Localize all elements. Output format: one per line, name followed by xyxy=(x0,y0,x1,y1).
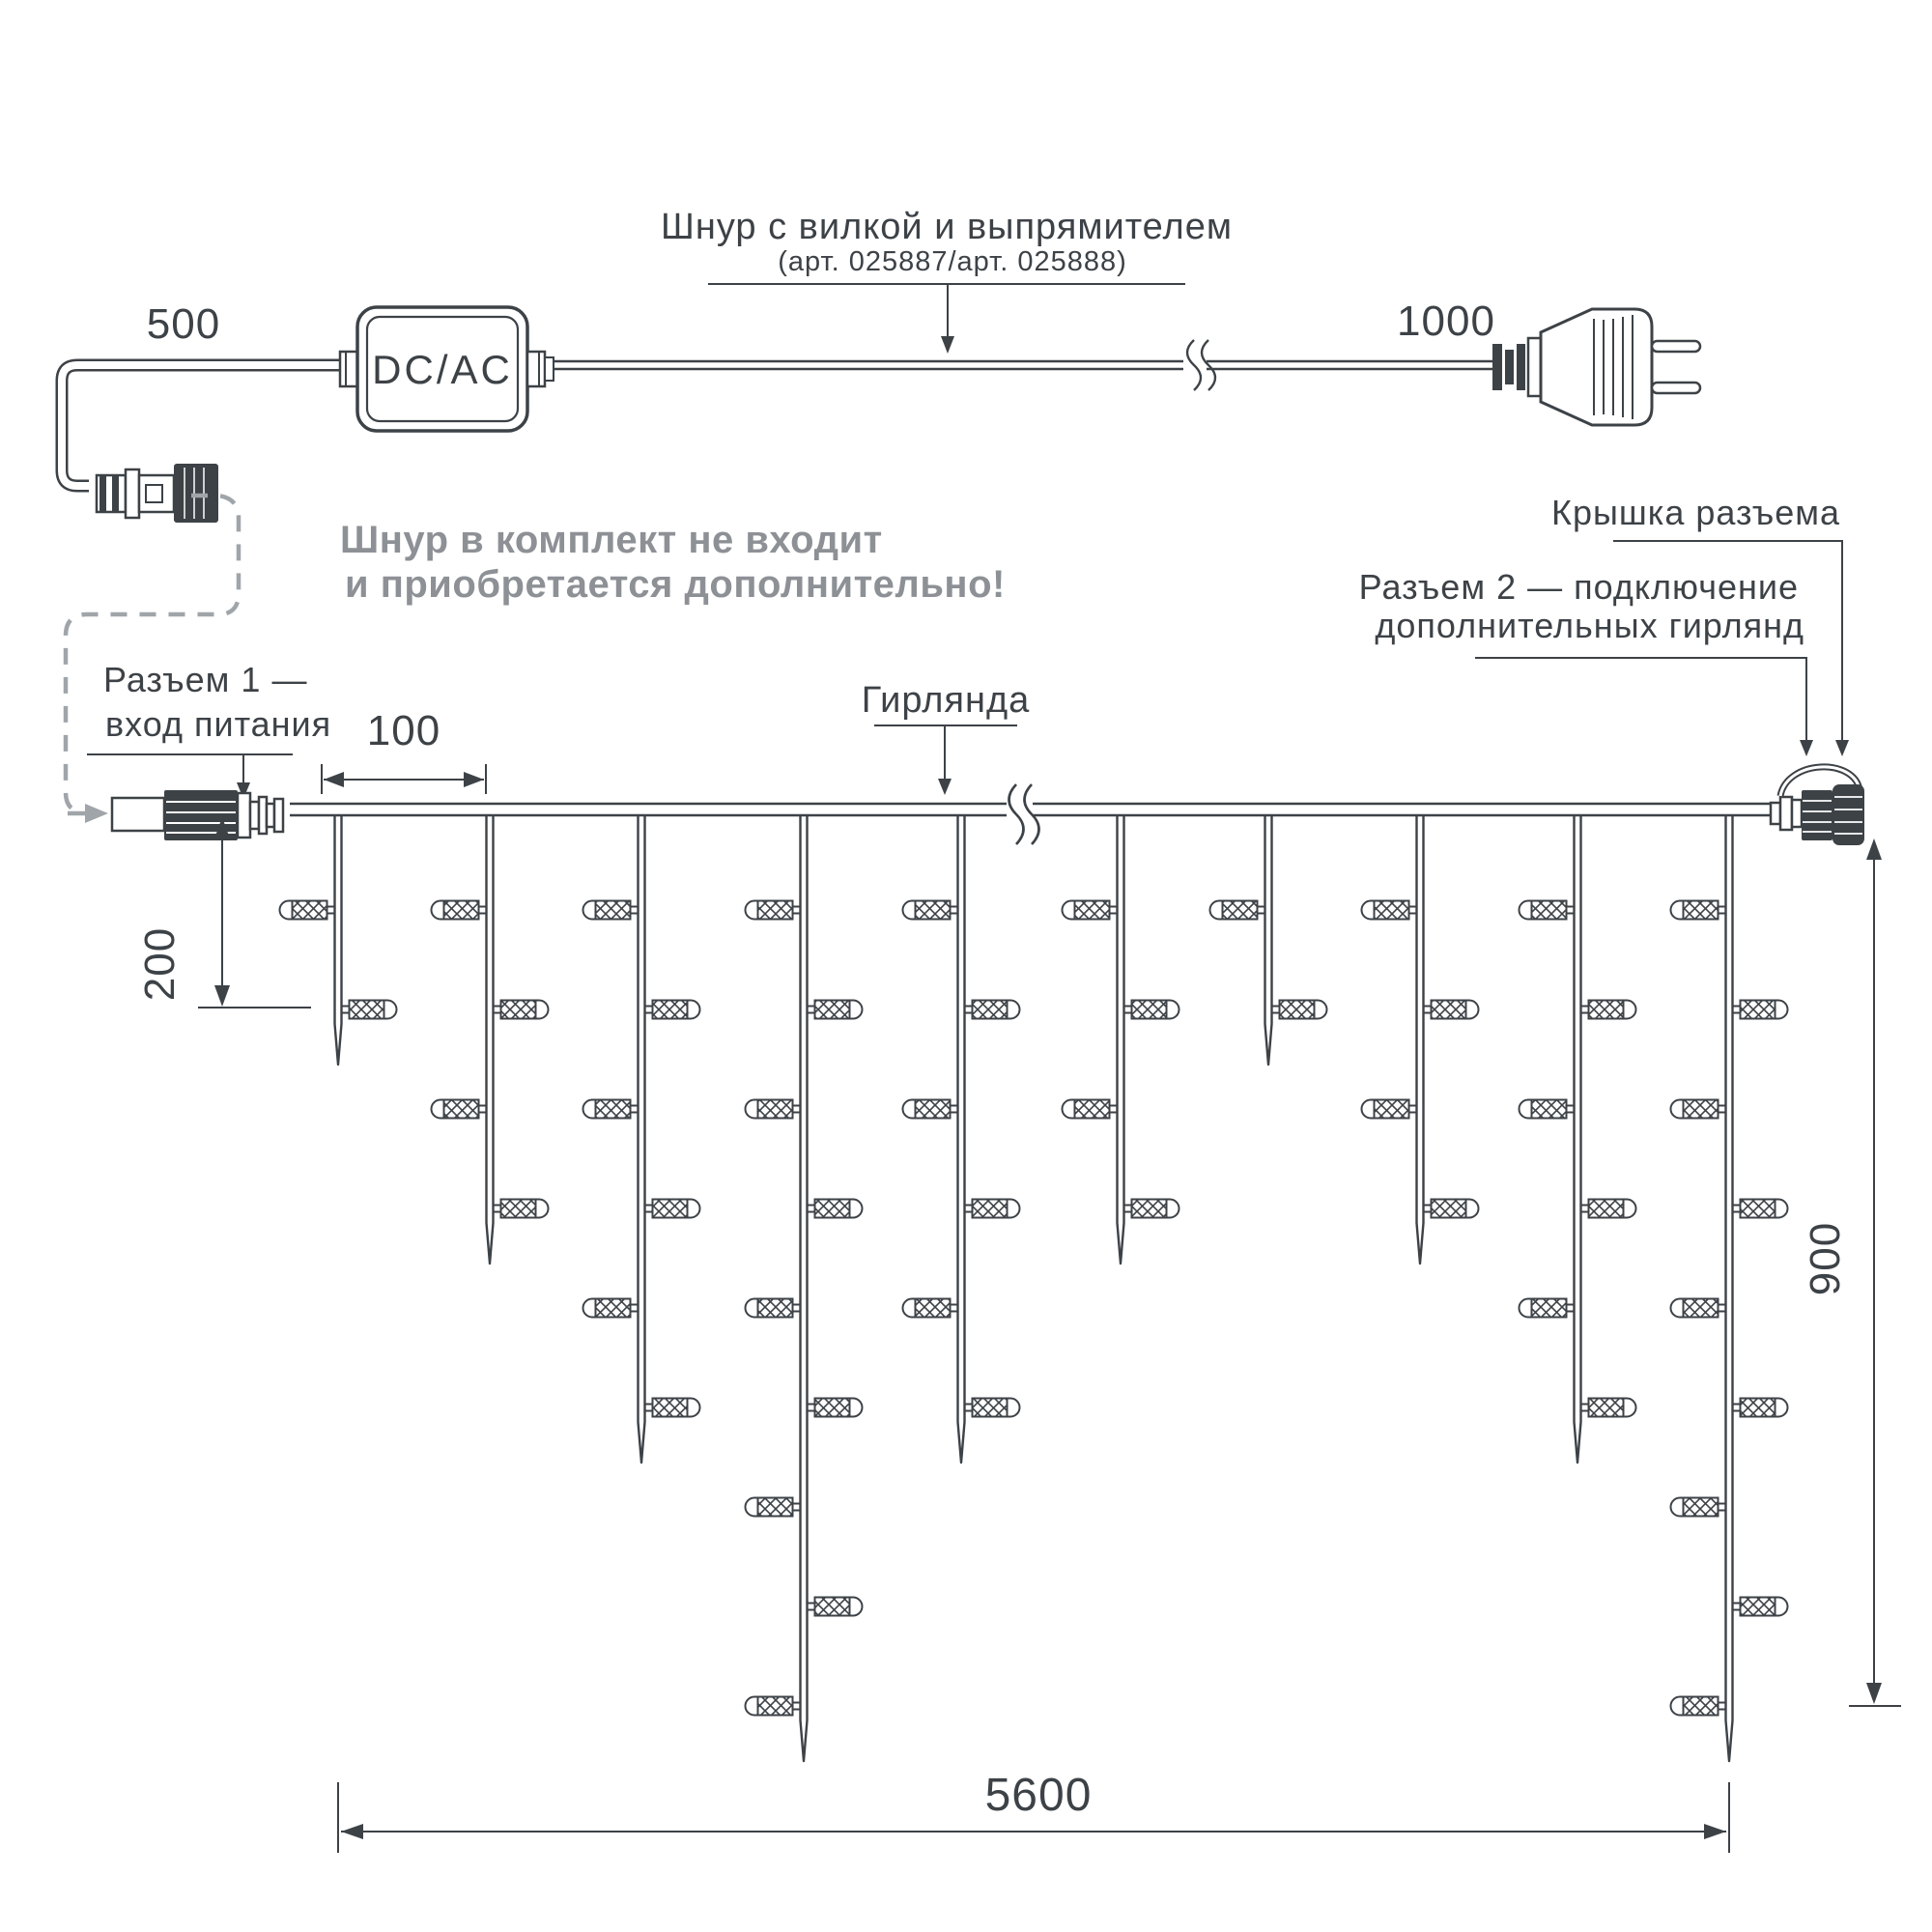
note-line2: и приобретается дополнительно! xyxy=(345,563,1006,606)
plug-prong xyxy=(1652,341,1700,352)
arrow-left-icon xyxy=(341,1824,363,1839)
cord-1000-wire xyxy=(554,340,1492,390)
conn1-line1: Разъем 1 — xyxy=(103,660,307,699)
arrow-down-icon xyxy=(1800,740,1813,756)
conn1-callout: Разъем 1 — вход питания xyxy=(87,660,331,799)
dim-1000: 1000 xyxy=(1397,298,1495,345)
arrow-right-icon xyxy=(1704,1824,1726,1839)
arrow-down-icon xyxy=(941,336,954,354)
garland-label: Гирлянда xyxy=(862,680,1031,721)
arrow-down-icon xyxy=(214,985,230,1007)
dim-900: 900 xyxy=(1802,1222,1849,1295)
cap-label: Крышка разъема xyxy=(1551,493,1840,532)
conn2-line2: дополнительных гирлянд xyxy=(1375,606,1804,645)
arrow-left-icon xyxy=(324,772,344,787)
dim-500: 500 xyxy=(147,300,220,348)
dcac-converter: DC/AC xyxy=(340,307,554,431)
dim-5600-group: 5600 xyxy=(338,1770,1729,1853)
arrow-up-icon xyxy=(1866,838,1882,860)
note-line1: Шнур в комплект не входит xyxy=(340,519,883,561)
wire-break-icon xyxy=(1187,340,1201,390)
conn2-callout: Разъем 2 — подключение дополнительных ги… xyxy=(1359,567,1813,756)
icicle-drops xyxy=(280,815,1788,1761)
garland-diagram: 500 DC/AC 1000 Шнур с ви xyxy=(0,0,1932,1932)
garland-callout: Гирлянда xyxy=(862,680,1031,795)
wire-break-icon xyxy=(1009,784,1024,844)
diagram-page: 500 DC/AC 1000 Шнур с ви xyxy=(0,0,1932,1932)
garland-output-connector xyxy=(1771,767,1864,845)
dim-100-group: 100 xyxy=(322,707,486,794)
dcac-label: DC/AC xyxy=(372,347,513,392)
arrow-right-icon xyxy=(464,772,484,787)
connector-cap xyxy=(1833,784,1864,845)
arrow-down-icon xyxy=(1866,1683,1882,1704)
arrow-down-icon xyxy=(1835,740,1849,756)
dim-100: 100 xyxy=(367,707,440,754)
cord-title-callout: Шнур с вилкой и выпрямителем (арт. 02588… xyxy=(661,207,1233,354)
garland-input-connector xyxy=(112,790,283,840)
garland-wire xyxy=(290,784,1771,844)
power-plug xyxy=(1492,309,1700,425)
arrow-right-icon xyxy=(85,804,108,823)
cord-title: Шнур с вилкой и выпрямителем xyxy=(661,207,1233,247)
arrow-down-icon xyxy=(938,779,952,795)
dim-900-group: 900 xyxy=(1802,838,1901,1706)
cord-article: (арт. 025887/арт. 025888) xyxy=(778,246,1127,277)
dim-5600: 5600 xyxy=(985,1770,1093,1821)
dim-200: 200 xyxy=(136,927,184,1001)
plug-prong xyxy=(1652,383,1700,393)
cord-output-connector xyxy=(97,464,218,523)
conn1-line2: вход питания xyxy=(105,704,331,744)
conn2-line1: Разъем 2 — подключение xyxy=(1359,567,1799,607)
